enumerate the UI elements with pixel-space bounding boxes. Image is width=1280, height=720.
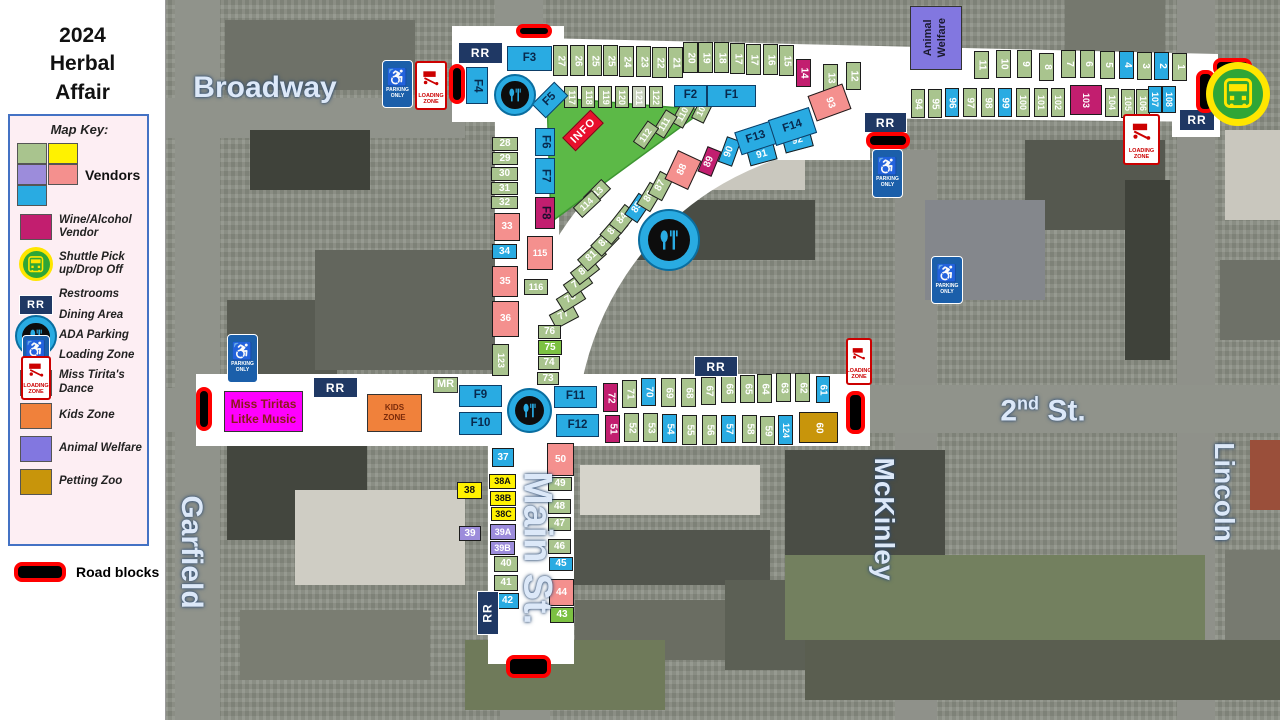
booth-66: 66 [721,375,736,403]
booth-96: 96 [945,88,959,117]
handtruck-icon [26,358,47,383]
legend-icon [17,436,55,462]
booth-35: 35 [492,266,518,297]
utensils-icon [521,402,538,419]
booth-30: 30 [491,167,518,181]
booth-20: 20 [683,42,698,73]
booth-75: 75 [538,340,562,355]
booth-6: 6 [1080,50,1095,78]
booth-71: 71 [622,380,637,408]
booth-100: 100 [1016,88,1030,117]
booth-107: 107 [1148,86,1162,113]
legend-label: Miss Tirita's Dance [55,369,142,395]
booth-119: 119 [598,86,612,108]
booth-56: 56 [702,415,717,445]
map-key-title: Map Key: [17,122,142,137]
booth-120: 120 [615,86,629,108]
booth-F1: F1 [707,85,756,107]
legend-item: Wine/Alcohol Vendor [17,214,142,240]
festival-map: 2726252524232221201918171716151413121171… [165,0,1280,720]
booth-121: 121 [632,86,646,108]
booth-9: 9 [1017,50,1032,78]
legend-icon [17,214,55,240]
booth-99: 99 [998,88,1012,117]
booth-37: 37 [492,448,514,467]
booth-57: 57 [721,415,736,443]
booth-29: 29 [492,152,518,165]
legend-label: Loading Zone [55,349,134,362]
booth-64: 64 [757,374,772,403]
legend-item-vendors: Vendors [17,143,142,207]
booth-16: 16 [763,44,778,75]
vendor-color-swatch [17,143,47,164]
booth-15: 15 [779,45,794,76]
bus-icon [26,255,45,274]
dining-area-icon [638,209,700,271]
ada-parking-sign: ♿ PARKINGONLY [931,256,963,304]
booth-25: 25 [587,45,602,76]
title-line: 2024 [0,22,165,50]
utensils-icon [657,228,681,252]
street-label-mckinley: McKinley [868,458,900,581]
vendor-color-swatch [17,185,47,206]
booth-31: 31 [491,182,518,195]
booth-53: 53 [643,413,658,442]
color-swatch [20,214,52,240]
booth-98: 98 [981,88,995,117]
shuttle-stop-icon [19,247,53,281]
booth-F7: F7 [535,158,555,194]
booth-4: 4 [1119,51,1134,79]
handtruck-icon [850,340,868,368]
legend-item: Animal Welfare [17,436,142,462]
roadblock [866,132,910,149]
booth-76: 76 [538,325,561,339]
title-line: Herbal [0,50,165,78]
street-label-garfield: Garfield [174,495,208,608]
booth-F10: F10 [459,412,502,435]
booth-39B: 39B [490,541,515,555]
booth-36: 36 [492,301,519,337]
booth-104: 104 [1105,88,1119,117]
legend-item: RRRestrooms [17,288,142,301]
booth-19: 19 [698,42,713,73]
booth-7: 7 [1061,50,1076,78]
restroom-sign: RR [19,295,53,315]
booth-F11: F11 [554,386,597,408]
dining-area-icon [494,74,536,116]
legend-item: Kids Zone [17,403,142,429]
legend-item: Petting Zoo [17,469,142,495]
booth-3: 3 [1137,52,1152,80]
roadblock [449,64,465,104]
ada-parking-sign: ♿ PARKINGONLY [382,60,413,108]
booth-23: 23 [636,46,651,77]
kids-zone: KIDSZONE [367,394,422,432]
booth-54: 54 [662,414,677,443]
booth-MR: MR [433,377,458,393]
booth-22: 22 [652,47,667,78]
booth-51: 51 [605,415,620,443]
booth-52: 52 [624,413,639,442]
booth-73: 73 [537,372,559,385]
miss-tiritas-stage: Miss TiritasLitke Music [224,391,303,432]
booth-8: 8 [1039,53,1054,81]
booth-59: 59 [760,416,775,445]
restroom-sign: RR [477,591,499,635]
booth-60: 60 [799,412,838,443]
booth-39: 39 [459,526,481,541]
booth-74: 74 [538,356,560,370]
booth-115: 115 [527,236,553,270]
booth-68: 68 [681,378,696,407]
booth-18: 18 [714,42,729,73]
booth-21: 21 [668,47,683,78]
booth-116: 116 [524,279,548,295]
booth-F2: F2 [674,85,707,107]
booth-14: 14 [796,59,811,87]
booth-97: 97 [963,88,977,117]
booth-65: 65 [740,375,755,403]
parking-only-label: PARKINGONLY [386,88,409,100]
animal-welfare-zone: AnimalWelfare [910,6,962,70]
roadblock [516,24,552,38]
booth-34: 34 [492,244,517,259]
parking-only-label: PARKINGONLY [876,177,899,189]
parking-only-label: PARKINGONLY [936,284,959,296]
color-swatch [20,403,52,429]
legend-label: Wine/Alcohol Vendor [55,214,142,240]
legend-panel: 2024HerbalAffair Map Key: Vendors Wine/A… [0,0,166,720]
loading-zone-label: LOADINGZONE [23,383,48,396]
legend-label: Kids Zone [55,409,115,422]
booth-25: 25 [603,45,618,76]
restroom-sign: RR [694,356,738,377]
booth-63: 63 [776,373,791,402]
booth-17: 17 [746,44,761,75]
booth-F12: F12 [556,414,599,437]
loading-zone-sign: LOADINGZONE [1123,114,1160,165]
wheelchair-icon: ♿ [877,158,898,175]
street-label-main-st-: Main St. [515,471,560,624]
booth-F4: F4 [466,67,488,104]
roadblock [196,387,212,431]
booth-F6: F6 [535,128,555,156]
booth-38A: 38A [489,474,516,489]
ada-parking-sign: ♿ PARKINGONLY [227,334,258,383]
loading-zone-label: LOADINGZONE [846,368,871,381]
booth-F3: F3 [507,46,552,71]
booth-124: 124 [778,415,793,445]
handtruck-icon [1129,116,1155,148]
roadblock [846,391,865,434]
booth-F8: F8 [535,197,555,229]
shuttle-stop-icon [1206,62,1270,126]
legend-label: Restrooms [55,288,119,301]
color-swatch [20,436,52,462]
booth-93: 93 [807,83,851,121]
legend-icon [17,469,55,495]
legend-label: Road blocks [66,564,159,580]
booth-101: 101 [1034,88,1048,117]
booth-108: 108 [1162,86,1176,113]
title-line: Affair [0,79,165,107]
utensils-icon [507,87,523,103]
legend-item-roadblocks: Road blocks [14,562,159,582]
booth-33: 33 [494,213,520,241]
dining-area-icon [507,388,552,433]
parking-only-label: PARKINGONLY [231,362,254,374]
info-booth: INFO [562,110,604,152]
legend-label: Vendors [79,167,140,183]
street-label-lincoln: Lincoln [1208,442,1240,542]
booth-102: 102 [1051,88,1065,117]
booth-55: 55 [682,415,697,445]
map-title: 2024HerbalAffair [0,22,165,107]
vendor-color-swatch [17,164,47,185]
legend-icon [17,247,55,281]
restroom-sign: RR [458,42,503,64]
street-label-broadway: Broadway [193,71,336,105]
legend-label: Petting Zoo [55,475,122,488]
legend-label: ADA Parking [55,329,129,342]
legend-label: Shuttle Pick up/Drop Off [55,251,142,277]
map-key: Map Key: Vendors Wine/Alcohol Vendor Shu… [8,114,149,546]
wheelchair-icon: ♿ [232,343,253,360]
legend-item: Shuttle Pick up/Drop Off [17,247,142,281]
wheelchair-icon: ♿ [387,69,408,86]
booth-26: 26 [570,45,585,76]
booth-67: 67 [701,377,716,405]
booth-10: 10 [996,50,1011,78]
booth-F9: F9 [459,385,502,407]
roadblock-icon [14,562,66,582]
booth-39A: 39A [490,524,516,540]
restroom-sign: RR [313,377,358,398]
booth-12: 12 [846,62,861,90]
booth-58: 58 [742,415,757,443]
booth-123: 123 [492,344,509,376]
booth-69: 69 [661,378,676,407]
wheelchair-icon: ♿ [936,265,957,282]
booth-122: 122 [649,86,663,108]
booth-38C: 38C [491,507,516,521]
loading-zone-sign: LOADINGZONE [846,338,872,385]
booth-28: 28 [492,137,518,151]
vendor-color-swatch [48,143,78,164]
vendor-color-swatch [48,164,78,185]
vendor-swatches [17,143,79,207]
booth-24: 24 [619,46,634,77]
booth-62: 62 [795,373,810,402]
handtruck-icon [420,63,442,93]
booth-38: 38 [457,482,482,499]
loading-zone-label: LOADINGZONE [418,93,443,106]
booth-5: 5 [1100,51,1115,79]
loading-zone-label: LOADINGZONE [1129,148,1154,161]
booth-61: 61 [816,376,830,403]
legend-icon [17,403,55,429]
booth-72: 72 [603,383,618,412]
legend-label: Animal Welfare [55,442,142,455]
booth-70: 70 [641,378,656,406]
roadblock [506,655,551,678]
booth-118: 118 [581,86,595,108]
booth-17: 17 [730,43,745,74]
loading-zone-sign: LOADINGZONE [415,61,447,110]
booth-32: 32 [491,196,518,209]
booth-95: 95 [928,89,942,118]
booth-2: 2 [1154,52,1169,80]
booth-112: 112 [633,120,659,149]
bus-icon [1220,76,1256,112]
color-swatch [20,469,52,495]
booth-38B: 38B [490,491,516,506]
booth-F5: F5 [532,82,569,119]
street-label-2nd-st-: 2nd St. [1000,394,1085,429]
booth-1: 1 [1172,53,1187,81]
restroom-sign: RR [864,112,907,133]
booth-103: 103 [1070,85,1102,115]
booth-11: 11 [974,51,989,79]
loading-zone-sign: LOADINGZONE [21,356,51,400]
ada-parking-sign: ♿ PARKINGONLY [872,149,903,198]
booth-27: 27 [553,45,568,76]
booth-94: 94 [911,89,925,118]
legend-label: Dining Area [55,309,123,322]
